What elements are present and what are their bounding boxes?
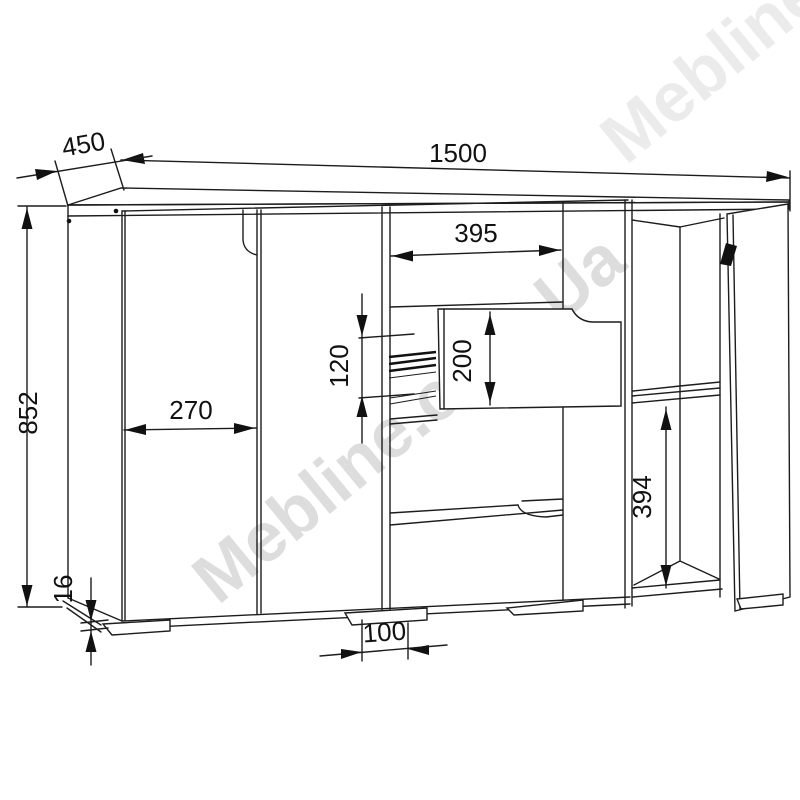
dim-foot-width: 100 [320, 616, 447, 661]
dim-drawer-opening-width: 395 [391, 218, 561, 262]
foot [103, 620, 170, 635]
dim-left-door-label: 270 [169, 395, 212, 425]
middle-shelf [632, 382, 720, 403]
dim-foot-width-label: 100 [362, 616, 407, 649]
open-shelf-section [625, 200, 724, 608]
dim-depth-label: 450 [59, 126, 107, 163]
plinth-feet [103, 594, 783, 635]
open-door [720, 204, 790, 611]
dim-width-label: 1500 [429, 138, 487, 168]
dim-drawer-opening-label: 395 [454, 218, 497, 248]
dim-shelf-compartment: 394 [627, 407, 672, 588]
sideboard-drawing-svg: Mebline.com.Ua Mebline.com.Ua [0, 0, 800, 800]
watermark-text-tile: Mebline.com.Ua [586, 0, 800, 178]
dim-height-label: 852 [13, 391, 43, 434]
door-handle-groove [243, 210, 257, 255]
dim-shelf-compartment-label: 394 [627, 475, 657, 518]
dim-height: 852 [13, 206, 66, 607]
cam-dot [114, 209, 119, 214]
bottom-panel [632, 561, 722, 597]
dim-bottom-panel-label: 16 [48, 575, 78, 604]
dim-rail-spacing-label: 120 [324, 344, 354, 387]
dim-left-door-width: 270 [124, 395, 256, 435]
dim-bottom-panel: 16 [48, 575, 108, 665]
furniture-dimension-drawing: Mebline.com.Ua Mebline.com.Ua [0, 0, 800, 800]
dim-drawer-height-label: 200 [447, 339, 477, 382]
cabinet-top-board [67, 188, 789, 223]
